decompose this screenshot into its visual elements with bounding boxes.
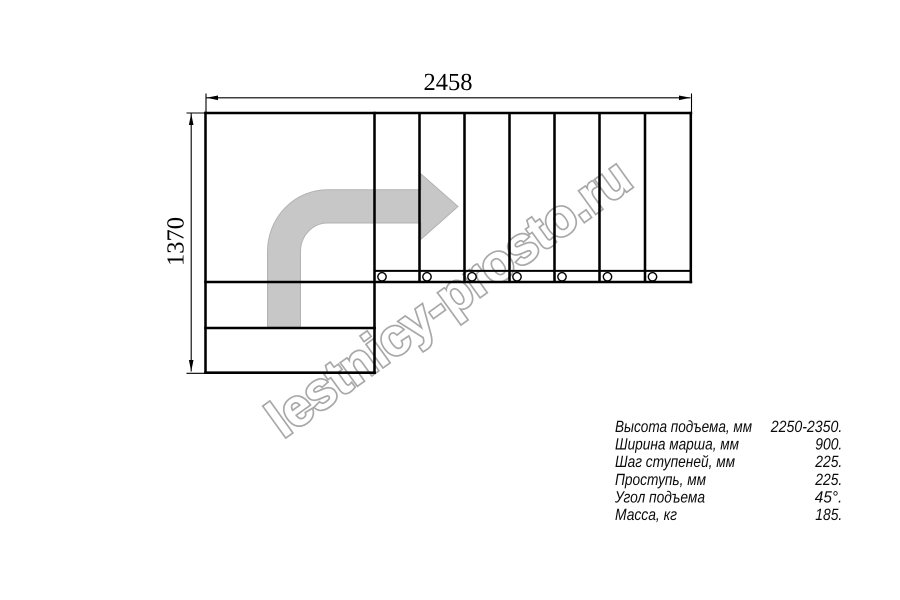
svg-text:Шаг ступеней, мм: Шаг ступеней, мм — [615, 453, 735, 471]
svg-text:2250-2350.: 2250-2350. — [770, 418, 842, 436]
svg-text:Высота подъема, мм: Высота подъема, мм — [615, 418, 752, 436]
svg-text:225.: 225. — [814, 471, 842, 489]
svg-text:Угол подъема: Угол подъема — [614, 488, 705, 506]
svg-text:225.: 225. — [814, 453, 842, 471]
svg-text:900.: 900. — [815, 436, 842, 454]
svg-text:Ширина марша, мм: Ширина марша, мм — [615, 436, 739, 454]
svg-text:45°.: 45°. — [815, 488, 843, 506]
svg-text:2458: 2458 — [424, 69, 473, 96]
svg-text:Проступь, мм: Проступь, мм — [615, 471, 706, 489]
svg-text:Масса, кг: Масса, кг — [615, 506, 677, 524]
svg-text:1370: 1370 — [163, 217, 190, 266]
svg-text:185.: 185. — [815, 506, 842, 524]
